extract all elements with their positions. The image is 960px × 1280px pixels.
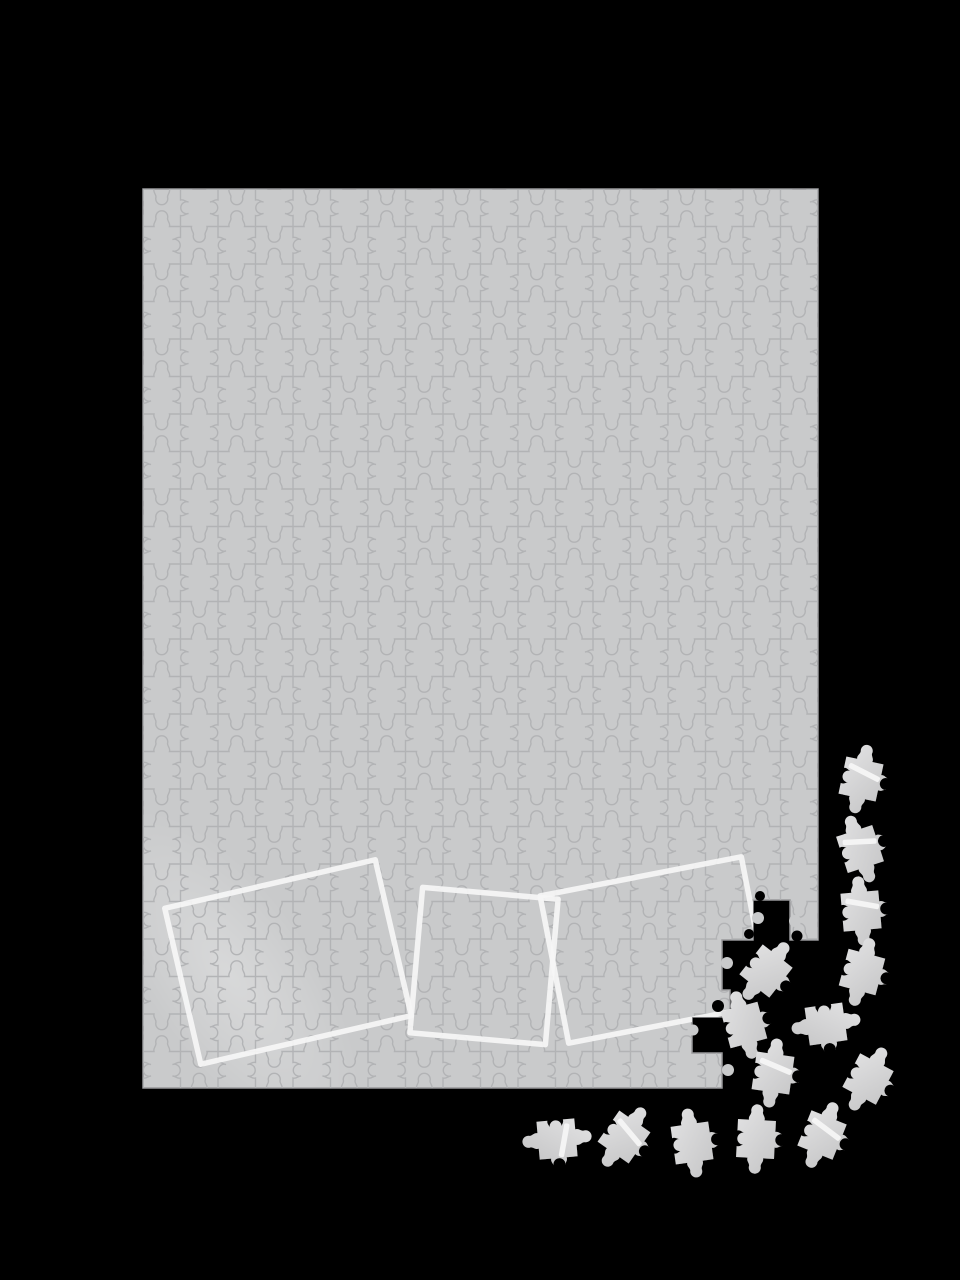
edge-knob [721, 957, 733, 969]
edge-knob [712, 1000, 724, 1012]
edge-knob [744, 929, 754, 939]
edge-knob [688, 1025, 699, 1036]
edge-knob [755, 891, 765, 901]
puzzle-mockup-stage [0, 0, 960, 1280]
edge-knob [752, 912, 764, 924]
edge-knob [789, 915, 801, 927]
edge-knob [792, 931, 803, 942]
edge-knob [694, 1040, 706, 1052]
puzzle-mockup-canvas [0, 0, 960, 1280]
edge-knob [722, 1064, 734, 1076]
jigsaw-cut-lines [143, 189, 818, 1088]
